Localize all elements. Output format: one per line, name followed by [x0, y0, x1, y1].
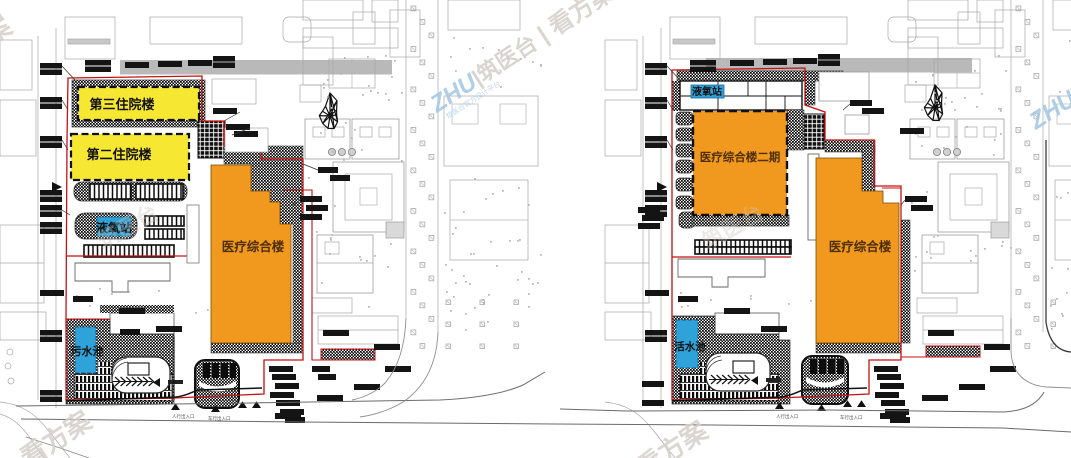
svg-text:车行出入口: 车行出入口 [840, 414, 863, 421]
svg-text:第二住院楼: 第二住院楼 [86, 147, 151, 162]
svg-text:第三住院楼: 第三住院楼 [89, 97, 154, 112]
svg-text:人行出入口: 人行出入口 [172, 413, 195, 420]
svg-text:医疗综合楼: 医疗综合楼 [829, 239, 892, 254]
svg-text:医疗综合楼二期: 医疗综合楼二期 [700, 150, 781, 164]
svg-text:液氧站: 液氧站 [692, 85, 722, 98]
svg-text:活水池: 活水池 [674, 340, 706, 353]
svg-text:污水池: 污水池 [71, 344, 104, 358]
svg-text:医疗综合楼: 医疗综合楼 [222, 239, 285, 254]
svg-text:人行出入口: 人行出入口 [776, 413, 799, 420]
